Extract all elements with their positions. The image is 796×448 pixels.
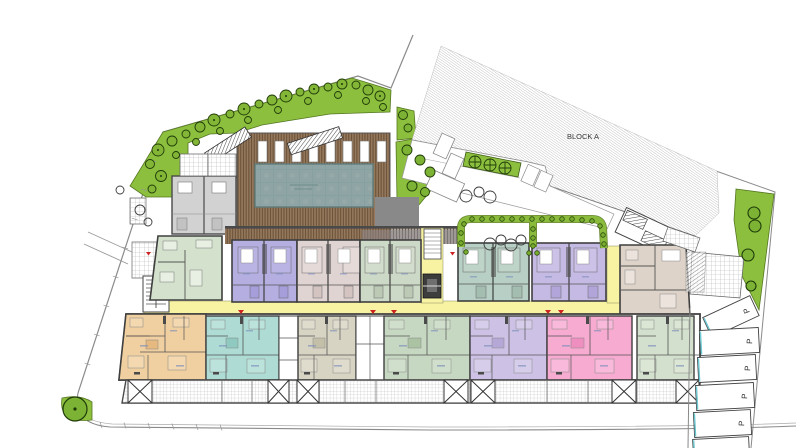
svg-text:P: P	[737, 420, 746, 426]
svg-text:P: P	[743, 365, 752, 371]
svg-text:P: P	[745, 338, 754, 344]
svg-text:BLOCK A: BLOCK A	[567, 132, 599, 141]
svg-text:P: P	[740, 393, 749, 399]
